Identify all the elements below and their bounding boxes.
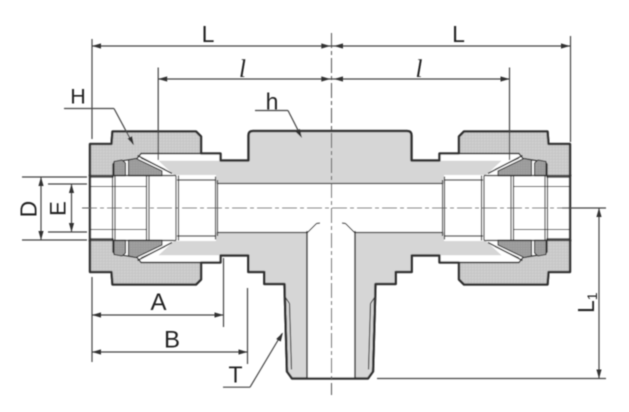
svg-text:T: T <box>228 362 242 388</box>
svg-text:l: l <box>416 56 423 83</box>
svg-text:L: L <box>452 21 465 47</box>
svg-text:l: l <box>239 56 246 83</box>
svg-text:h: h <box>266 89 279 115</box>
svg-text:H: H <box>70 85 86 109</box>
svg-text:A: A <box>150 289 166 316</box>
svg-text:D: D <box>16 201 42 218</box>
svg-text:E: E <box>46 201 71 216</box>
svg-text:B: B <box>164 327 180 354</box>
svg-text:L: L <box>202 21 215 47</box>
